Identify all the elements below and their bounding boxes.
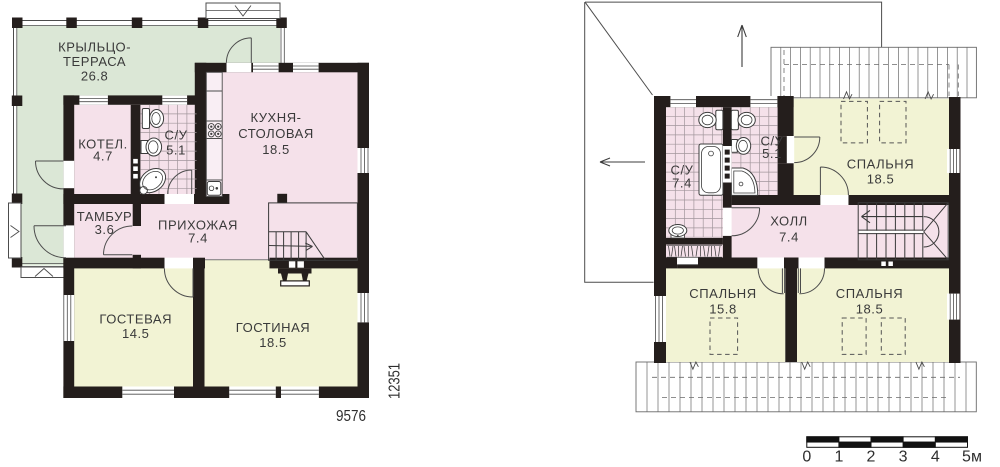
svg-text:ГОСТЕВАЯ: ГОСТЕВАЯ [99, 311, 172, 326]
svg-text:14.5: 14.5 [122, 326, 150, 341]
svg-text:ХОЛЛ: ХОЛЛ [770, 214, 807, 229]
svg-text:18.5: 18.5 [856, 301, 884, 316]
svg-text:2: 2 [867, 449, 876, 466]
svg-text:3: 3 [899, 449, 908, 466]
svg-text:15.8: 15.8 [709, 301, 737, 316]
svg-text:9576: 9576 [336, 408, 366, 425]
svg-text:КУХНЯ-: КУХНЯ- [250, 110, 301, 125]
svg-text:1: 1 [834, 449, 843, 466]
svg-text:СТОЛОВАЯ: СТОЛОВАЯ [238, 126, 314, 141]
svg-text:ГОСТИНАЯ: ГОСТИНАЯ [236, 320, 311, 335]
svg-text:5.1: 5.1 [166, 142, 186, 157]
svg-text:5.1: 5.1 [762, 146, 782, 161]
svg-text:СПАЛЬНЯ: СПАЛЬНЯ [689, 286, 756, 301]
svg-text:СПАЛЬНЯ: СПАЛЬНЯ [847, 157, 914, 172]
svg-text:18.5: 18.5 [867, 171, 895, 186]
svg-text:3.6: 3.6 [95, 222, 115, 237]
svg-text:12351: 12351 [387, 363, 404, 399]
svg-text:5м: 5м [962, 449, 982, 466]
svg-text:18.5: 18.5 [259, 335, 287, 350]
svg-text:7.4: 7.4 [188, 230, 208, 245]
svg-text:7.4: 7.4 [672, 175, 692, 190]
svg-text:18.5: 18.5 [262, 142, 290, 157]
svg-text:ТЕРРАСА: ТЕРРАСА [63, 54, 126, 69]
svg-text:26.8: 26.8 [81, 69, 109, 84]
svg-text:7.4: 7.4 [779, 230, 799, 245]
svg-text:0: 0 [802, 449, 811, 466]
svg-text:С/У: С/У [165, 128, 188, 143]
svg-text:СПАЛЬНЯ: СПАЛЬНЯ [836, 286, 903, 301]
svg-text:4: 4 [931, 449, 940, 466]
svg-text:КРЫЛЬЦО-: КРЫЛЬЦО- [58, 39, 131, 54]
svg-text:4.7: 4.7 [93, 149, 113, 164]
